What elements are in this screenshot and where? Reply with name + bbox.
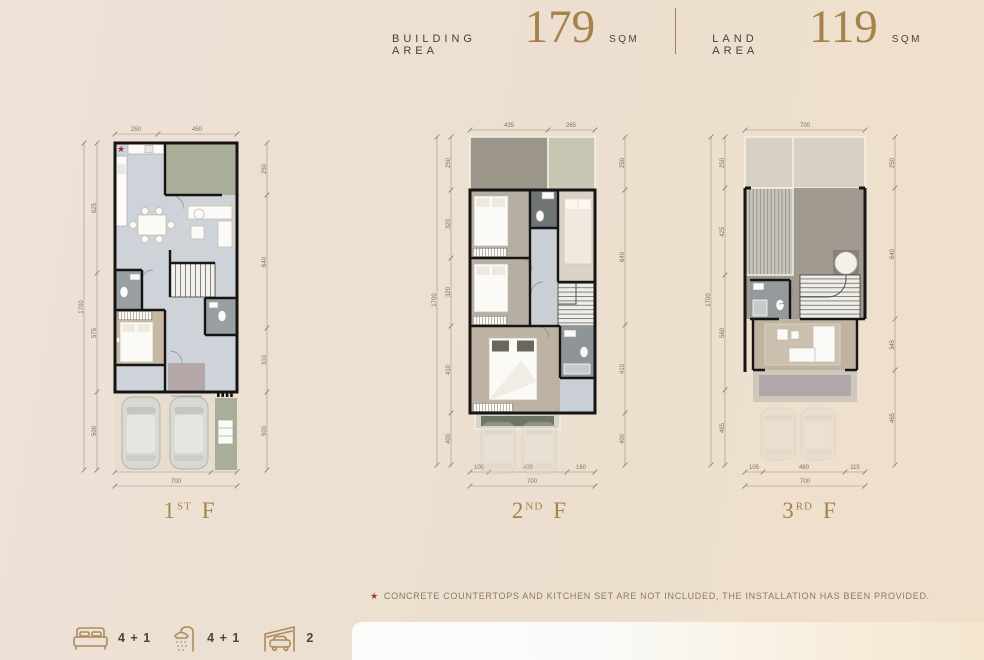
footnote-text: CONCRETE COUNTERTOPS AND KITCHEN SET ARE… (384, 591, 930, 601)
dim-label: 400 (620, 433, 626, 444)
building-area-value: 179 (525, 4, 596, 51)
house-f2 (470, 137, 595, 474)
dim-label: 1700 (432, 293, 438, 307)
dim-label: 1700 (79, 300, 85, 314)
dim-label: 250 (720, 157, 726, 168)
dim-label: 700 (800, 479, 811, 485)
dim-label: 575 (92, 327, 98, 338)
bedroom-5 (470, 326, 560, 413)
balcony (753, 370, 857, 402)
roof-panel (745, 137, 865, 188)
floor-label-3rd: 3RDF (690, 498, 930, 524)
dim-label: 640 (890, 248, 896, 259)
dim-label: 400 (446, 433, 452, 444)
dim-label: 1700 (706, 293, 712, 307)
bathroom-5 (750, 280, 790, 319)
house-f3 (745, 137, 865, 460)
car-1 (122, 397, 160, 469)
dim-label: 465 (720, 422, 726, 433)
deck (745, 188, 793, 275)
footnote-star-icon: ★ (370, 591, 379, 601)
footnote: ★CONCRETE COUNTERTOPS AND KITCHEN SET AR… (362, 591, 938, 602)
header: BUILDING AREA 179 SQM LAND AREA 119 SQM (392, 4, 922, 57)
kitchen-star-marker: ★ (117, 144, 125, 154)
bedroom-2 (470, 190, 530, 258)
stairs (170, 263, 215, 297)
ghost-cars (761, 408, 835, 460)
bedroom-3 (470, 258, 530, 326)
bedrooms-count: 4 + 1 (118, 631, 151, 645)
legend-parking: 2 (262, 624, 314, 652)
bedroom-1f (115, 310, 165, 365)
dim-label: 265 (566, 123, 577, 129)
dim-label: 480 (799, 465, 810, 471)
dim-label: 450 (192, 127, 203, 133)
bathroom-3 (530, 190, 558, 228)
floor-label-1st: 1STF (70, 498, 310, 524)
parking-count: 2 (306, 631, 314, 645)
floor-label-2nd: 2NDF (420, 498, 660, 524)
floorplan-page: BUILDING AREA 179 SQM LAND AREA 119 SQM … (0, 0, 984, 660)
dim-label: 250 (446, 157, 452, 168)
shower-icon (173, 623, 199, 653)
dim-label: 625 (92, 202, 98, 213)
dim-label: 425 (720, 226, 726, 237)
bedroom-4 (558, 190, 595, 282)
dim-label: 700 (800, 123, 811, 129)
dim-label: 250 (620, 157, 626, 168)
dim-label: 115 (850, 465, 860, 471)
dim-label: 250 (890, 157, 896, 168)
building-area-unit: SQM (609, 34, 639, 45)
dim-label: 640 (620, 251, 626, 262)
dim-label: 500 (92, 425, 98, 436)
dim-label: 310 (262, 354, 268, 365)
bathroom-1 (115, 270, 143, 310)
land-area-label: LAND AREA (712, 33, 795, 57)
header-divider (675, 8, 676, 54)
dim-label: 320 (446, 218, 452, 229)
floor-plan-2nd: 435 265 1700 250 320 320 410 400 250 640… (425, 120, 655, 505)
skylight (548, 137, 595, 190)
bathroom-2 (205, 298, 237, 334)
dim-label: 560 (720, 327, 726, 338)
building-area-label: BUILDING AREA (392, 33, 511, 57)
gate-hatch (217, 393, 233, 397)
dim-label: 410 (446, 364, 452, 375)
roof-terrace (470, 137, 548, 190)
carport-icon (262, 624, 298, 652)
stairs (800, 275, 860, 319)
dim-label: 250 (131, 127, 142, 133)
stairs (558, 282, 595, 326)
living-room (753, 319, 857, 370)
floor-plan-3rd: 700 1700 250 425 560 465 250 640 345 465… (695, 120, 925, 505)
dim-label: 320 (446, 286, 452, 297)
dim-label: 345 (890, 339, 896, 350)
dim-label: 640 (262, 256, 268, 267)
legend-bedrooms: 4 + 1 (72, 624, 151, 652)
bed-icon (72, 624, 110, 652)
dim-label: 465 (890, 412, 896, 423)
dim-label: 700 (527, 479, 538, 485)
dim-label: 700 (171, 479, 182, 485)
legend-bathrooms: 4 + 1 (173, 623, 240, 653)
dim-label: 500 (262, 425, 268, 436)
land-area-unit: SQM (892, 34, 922, 45)
car-2 (170, 397, 208, 469)
bathroom-4 (560, 326, 595, 378)
house-f1: ★ (115, 143, 237, 470)
land-area: LAND AREA 119 SQM (712, 4, 922, 57)
dim-label: 435 (504, 123, 515, 129)
building-area: BUILDING AREA 179 SQM (392, 4, 639, 57)
dim-label: 160 (576, 465, 587, 471)
dim-label: 105 (749, 465, 760, 471)
bottom-card (352, 622, 984, 660)
round-table (833, 250, 859, 276)
floor-plan-1st: 250 450 1700 625 575 500 250 640 310 500… (70, 120, 310, 505)
land-area-value: 119 (809, 4, 878, 51)
dim-label: 410 (620, 363, 626, 374)
terrace (165, 143, 237, 195)
dim-label: 250 (262, 163, 268, 174)
ghost-cars (481, 422, 556, 474)
bathrooms-count: 4 + 1 (207, 631, 240, 645)
legend: 4 + 1 4 + 1 2 (72, 623, 314, 653)
garage (122, 397, 237, 470)
